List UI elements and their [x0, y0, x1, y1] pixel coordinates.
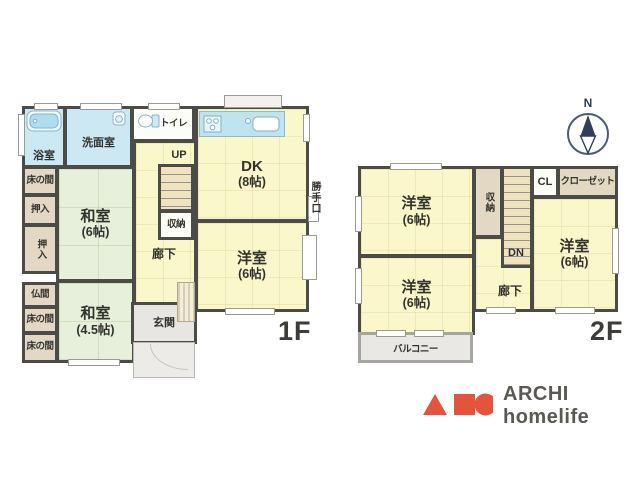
window-marker: [18, 114, 25, 156]
brand-name: ARCHI homelife: [503, 383, 640, 429]
compass-needle-icon: [565, 145, 611, 162]
tokonoma-mid-label: 床の間: [26, 315, 53, 326]
toilet-icon: [137, 112, 161, 130]
window-marker: [612, 228, 619, 274]
brand-logo: ARCHI homelife: [423, 383, 640, 429]
room-bath-label: 浴室: [33, 150, 55, 162]
room-yoshitsu-1f: 洋室 (6帖): [195, 220, 309, 312]
rouka-1f-label: 廊下: [141, 245, 187, 262]
room-washroom-label: 洗面室: [82, 137, 115, 149]
kitchen-counter: [199, 111, 285, 137]
room-oshiire-1f: 押入: [22, 194, 58, 226]
window-marker: [555, 307, 595, 314]
yoshitsu-nw-size: (6帖): [403, 213, 431, 227]
window-marker: [355, 268, 362, 304]
room-closet-2f: クローゼット: [557, 166, 618, 198]
room-tokonoma-mid-1f: 床の間: [22, 306, 58, 334]
room-butsuma-1f: 仏間: [22, 282, 58, 308]
room-cl-2f: CL: [531, 166, 559, 198]
window-marker: [68, 359, 120, 366]
room-tokonoma-top-1f: 床の間: [22, 166, 58, 196]
room-shuno-2f: 収納: [473, 166, 503, 238]
window-marker: [390, 163, 442, 170]
window-marker: [225, 308, 275, 315]
compass-north-label: N: [565, 96, 611, 110]
window-marker: [34, 103, 58, 110]
dn-label: DN: [498, 247, 534, 259]
washitsu6-size: (6帖): [82, 225, 110, 239]
washitsu45-name: 和室: [80, 306, 110, 323]
rouka-2f-label: 廊下: [486, 282, 534, 299]
window-marker: [376, 330, 406, 337]
dk-name: DK: [241, 159, 263, 176]
room-yoshitsu-nw-2f: 洋室 (6帖): [358, 166, 475, 257]
washitsu45-size: (4.5帖): [76, 323, 114, 337]
compass: N: [565, 96, 611, 163]
room-tokonoma-bottom-1f: 床の間: [22, 332, 58, 363]
yoshitsu-e-size: (6帖): [561, 255, 589, 269]
closet-label: クローゼット: [560, 177, 614, 188]
floor-2f-label: 2F: [590, 316, 624, 347]
oshiire-2-label: 押入: [35, 239, 46, 260]
up-label: UP: [162, 149, 196, 161]
stove-icon: [203, 114, 223, 134]
staircase-1f: [158, 164, 194, 212]
room-yoshitsu-sw-2f: 洋室 (6帖): [358, 255, 475, 335]
yoshitsu1f-name: 洋室: [237, 251, 267, 268]
shoe-cabinet: [177, 282, 195, 322]
window-marker: [80, 103, 122, 110]
dk-size: (8帖): [238, 175, 266, 189]
shuno-2f-label: 収納: [483, 192, 494, 213]
room-yoshitsu-e-2f: 洋室 (6帖): [531, 196, 618, 312]
yoshitsu-nw-name: 洋室: [401, 196, 431, 213]
tokonoma-label: 床の間: [26, 176, 53, 187]
katteguchi-label: 勝手口: [307, 181, 322, 214]
window-marker: [414, 330, 444, 337]
bathtub-icon: [26, 110, 62, 132]
washitsu6-name: 和室: [80, 209, 110, 226]
window-marker: [486, 307, 516, 314]
tokonoma-bottom-label: 床の間: [26, 342, 53, 353]
room-washitsu45-1f: 和室 (4.5帖): [56, 280, 135, 363]
floorplan-page: 浴室 洗面室 トイレ 床の間 押入 押入 仏間 床の間: [0, 0, 640, 480]
yoshitsu-e-name: 洋室: [559, 239, 589, 256]
floor-1f-label: 1F: [278, 316, 312, 347]
cl-label: CL: [538, 176, 553, 188]
window-marker: [148, 103, 180, 110]
kitchen-sink-icon: [243, 114, 281, 134]
yoshitsu-sw-size: (6帖): [403, 296, 431, 310]
washbasin-icon: [112, 111, 126, 126]
bay-window-yoshitsu: [302, 235, 317, 280]
genkan-label: 玄関: [153, 317, 175, 329]
logo-shapes-icon: [423, 391, 493, 422]
butsuma-label: 仏間: [31, 290, 49, 301]
window-marker: [355, 196, 362, 232]
yoshitsu-sw-name: 洋室: [401, 280, 431, 297]
room-oshiire-2-1f: 押入: [22, 224, 58, 274]
balcony-label: バルコニー: [393, 341, 438, 355]
room-toilet-label: トイレ: [160, 119, 187, 130]
yoshitsu1f-size: (6帖): [238, 267, 266, 281]
oshiire-label: 押入: [31, 205, 49, 216]
room-shuno-1f: 収納: [158, 210, 194, 240]
room-washitsu6-1f: 和室 (6帖): [56, 166, 135, 282]
window-marker: [303, 114, 310, 142]
shuno-1f-label: 収納: [167, 220, 185, 231]
bay-window-kitchen: [224, 95, 282, 108]
